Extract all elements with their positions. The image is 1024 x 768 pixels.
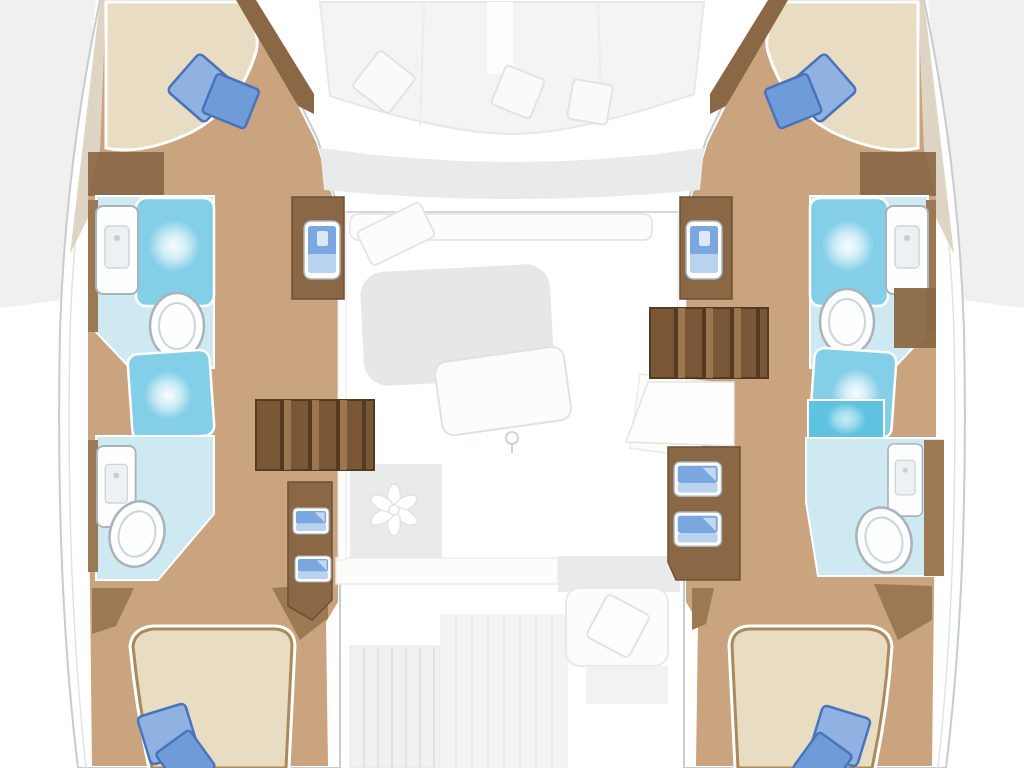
starboard-forward-shower-drain — [822, 220, 874, 272]
port-forward-bathroom — [88, 196, 214, 368]
starboard-forward-bulkhead — [860, 152, 936, 196]
starboard-stairs — [650, 308, 768, 378]
port-forward-sink — [96, 206, 138, 294]
port-drawer-2 — [295, 556, 331, 582]
port-hull-interior — [88, 0, 338, 768]
port-stairs — [256, 400, 374, 470]
port-forward-bulkhead — [88, 152, 164, 196]
bow-pillow-3 — [567, 79, 613, 125]
starboard-forward-sink — [886, 206, 928, 294]
starboard-forward-bathroom — [810, 196, 936, 368]
bow-lounge-gap — [487, 2, 513, 74]
starboard-vanity-basin — [686, 221, 722, 279]
port-drawer-cabinet — [288, 482, 332, 620]
starboard-drawer-2 — [674, 512, 722, 546]
starboard-aft-sink — [888, 444, 922, 516]
port-drawer-1 — [293, 508, 329, 534]
cockpit-threshold — [336, 558, 558, 584]
port-forward-shower-drain — [148, 220, 200, 272]
port-vanity-basin — [304, 221, 340, 279]
port-mid-shower — [127, 349, 215, 441]
starboard-aft-shower-drain — [826, 403, 866, 435]
starboard-forward-locker — [894, 288, 936, 348]
cockpit-step — [586, 666, 668, 704]
catamaran-floorplan-svg — [0, 0, 1024, 768]
starboard-forward-toilet — [820, 289, 874, 355]
starboard-drawer-1 — [674, 462, 722, 496]
cockpit-counter — [558, 556, 680, 592]
starboard-aft-bathroom-wall — [924, 440, 944, 576]
floorplan-canvas — [0, 0, 1024, 768]
